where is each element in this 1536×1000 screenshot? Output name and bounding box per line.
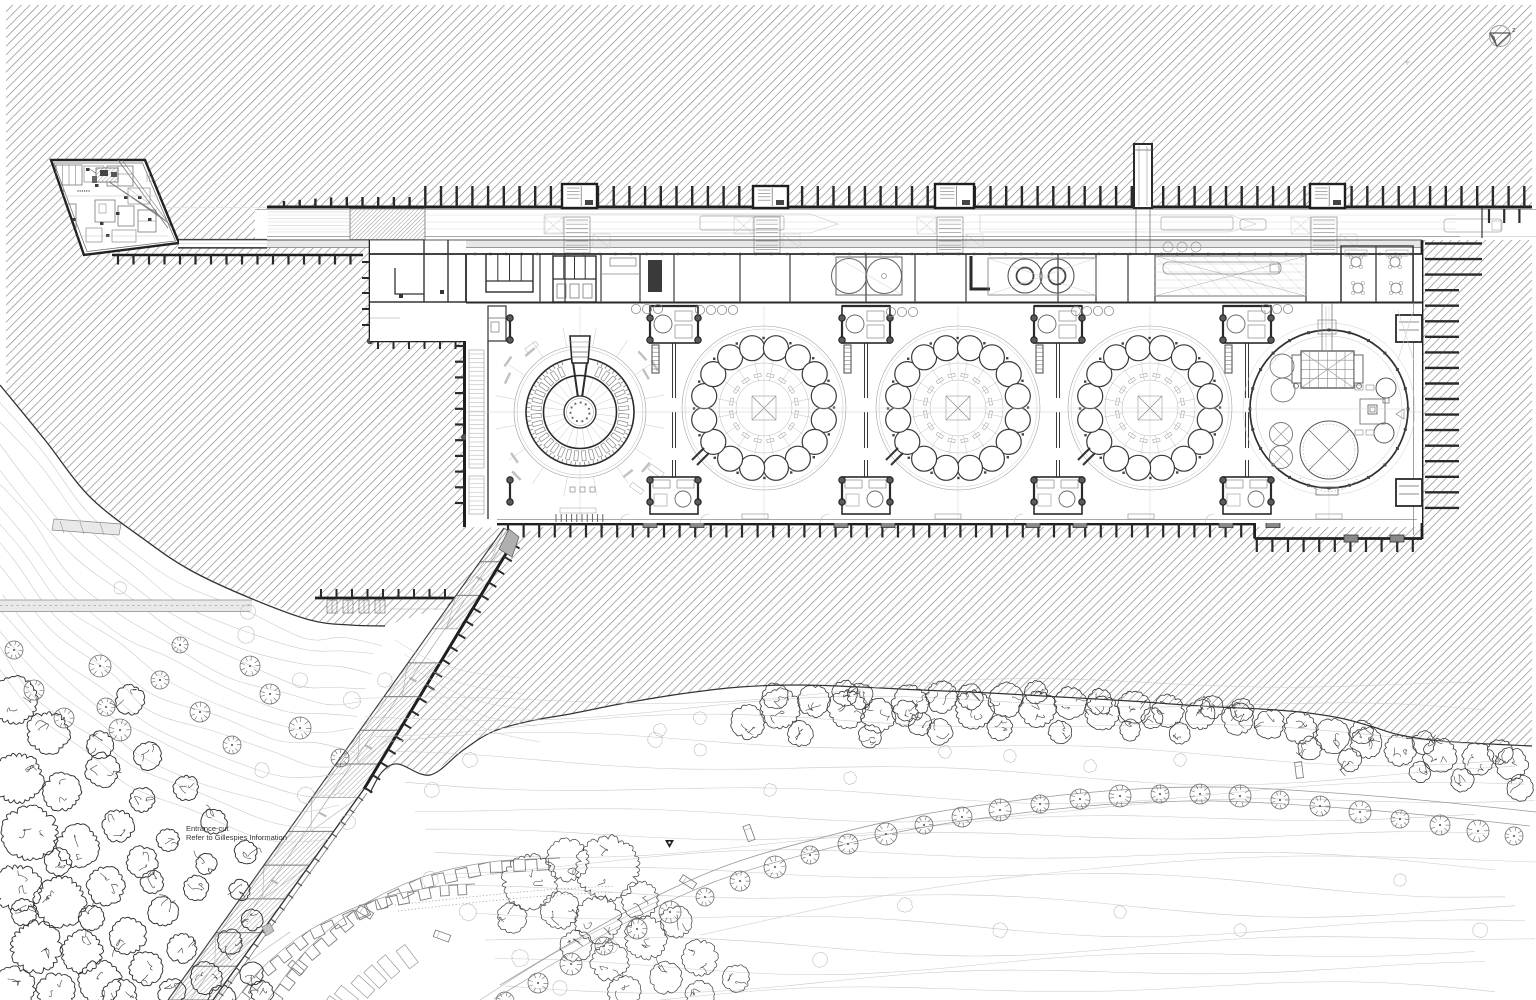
- svg-text:Refer to Gillespies Informati: Refer to Gillespies Information: [186, 833, 287, 842]
- svg-text:Entrance-cut: Entrance-cut: [186, 824, 229, 833]
- svg-text:z: z: [1512, 27, 1516, 34]
